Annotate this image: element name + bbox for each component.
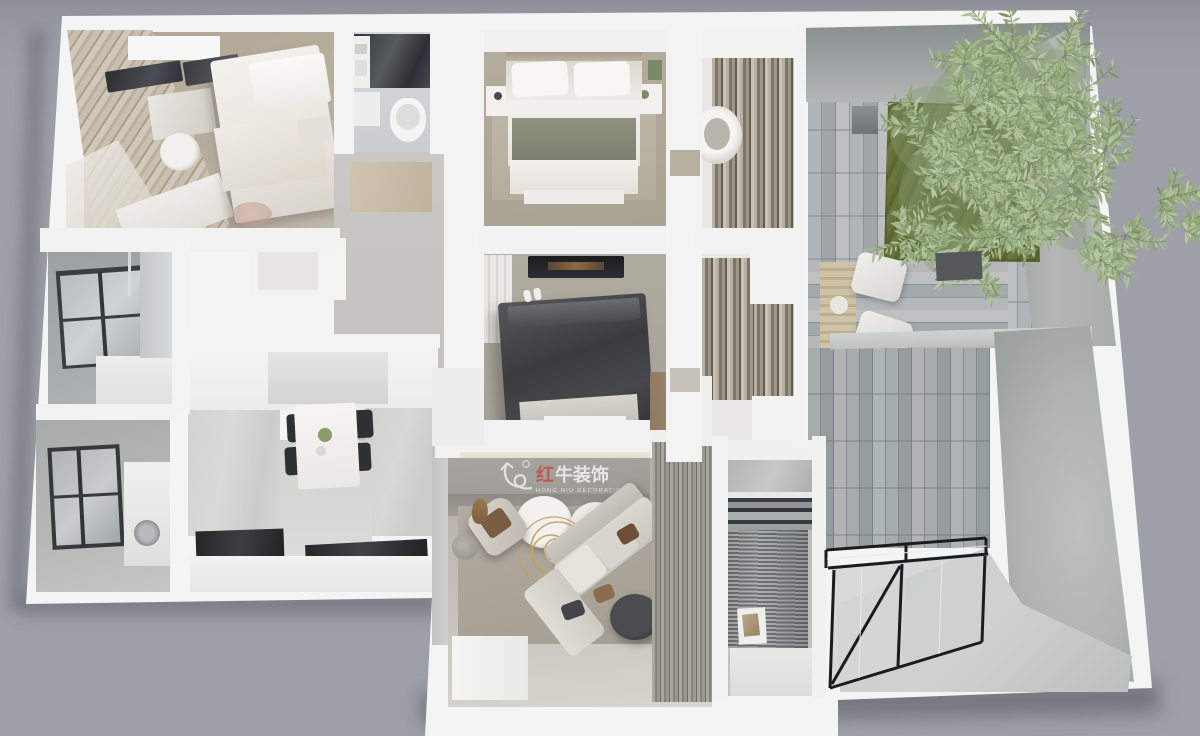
svg-text:红: 红	[536, 464, 554, 485]
svg-text:牛装饰: 牛装饰	[555, 464, 609, 485]
